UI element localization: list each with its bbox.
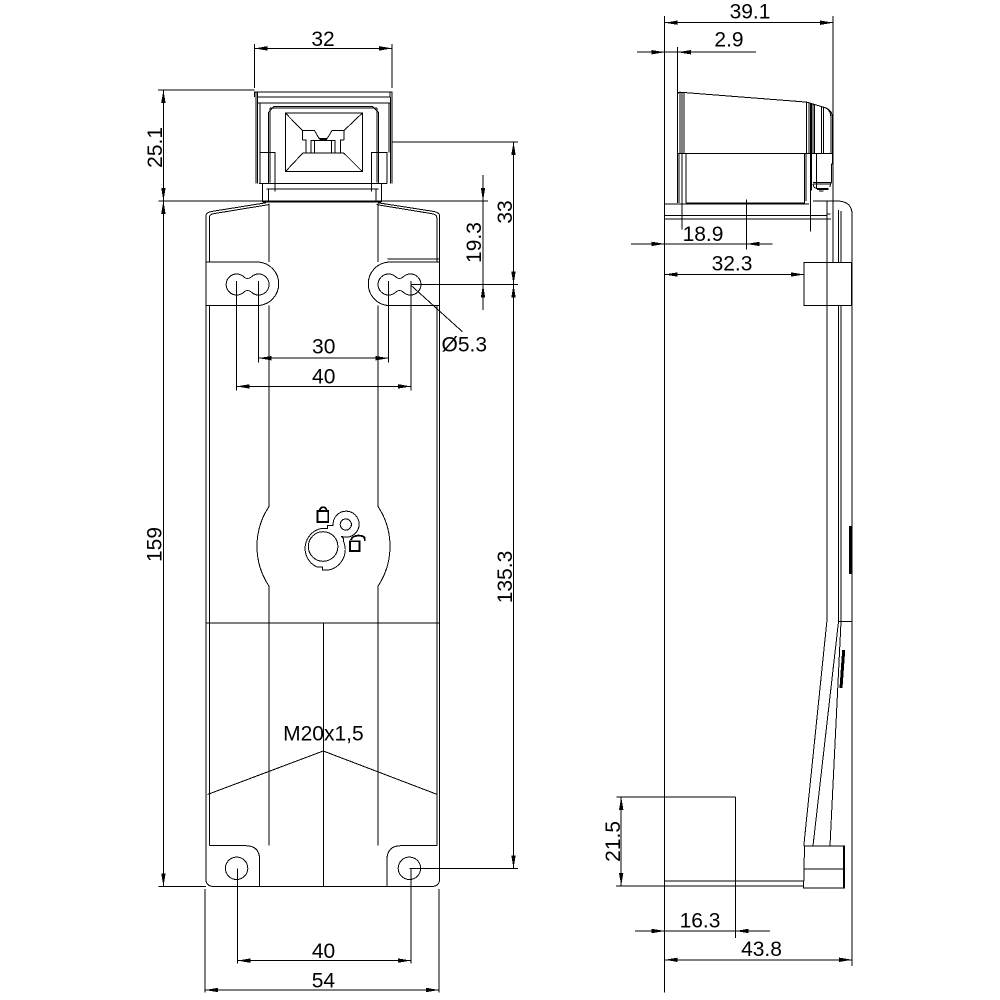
svg-text:135.3: 135.3 <box>494 551 517 604</box>
svg-text:39.1: 39.1 <box>730 1 771 24</box>
svg-text:30: 30 <box>312 336 335 359</box>
svg-text:M20x1,5: M20x1,5 <box>283 722 364 745</box>
svg-text:25.1: 25.1 <box>144 127 167 168</box>
svg-text:33: 33 <box>494 200 517 223</box>
svg-text:32: 32 <box>311 28 334 51</box>
svg-text:21.5: 21.5 <box>602 821 625 862</box>
svg-text:32.3: 32.3 <box>712 253 753 276</box>
svg-text:43.8: 43.8 <box>741 938 782 961</box>
svg-text:40: 40 <box>312 366 335 389</box>
svg-text:18.9: 18.9 <box>683 223 724 246</box>
svg-text:159: 159 <box>144 527 167 562</box>
svg-text:40: 40 <box>312 940 335 963</box>
svg-text:54: 54 <box>312 970 336 993</box>
svg-text:2.9: 2.9 <box>714 29 743 52</box>
svg-text:16.3: 16.3 <box>680 910 721 933</box>
svg-text:Ø5.3: Ø5.3 <box>442 334 488 357</box>
svg-text:19.3: 19.3 <box>463 222 486 263</box>
